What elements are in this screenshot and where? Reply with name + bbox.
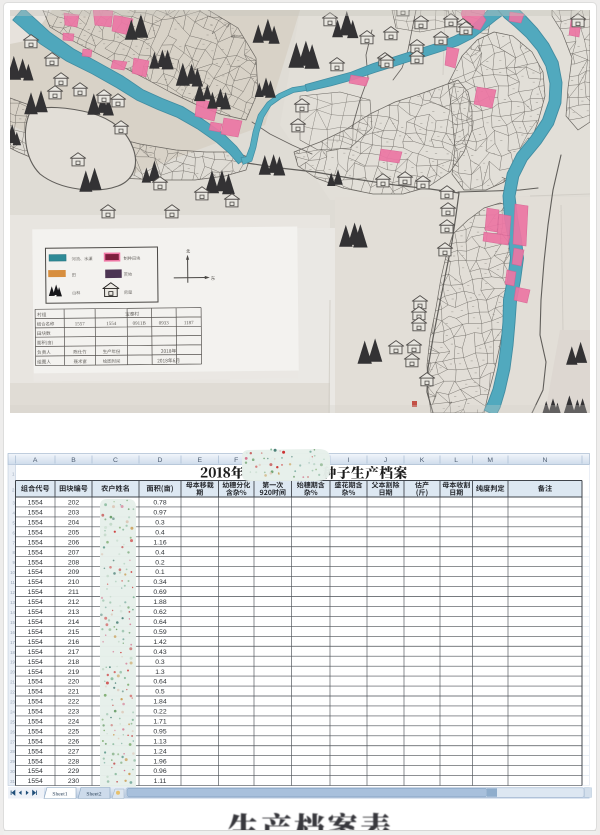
svg-text:1554: 1554 <box>28 589 43 596</box>
svg-text:227: 227 <box>68 748 80 755</box>
svg-text:1.3: 1.3 <box>155 669 165 676</box>
svg-text:1.96: 1.96 <box>153 758 166 765</box>
svg-text:1.71: 1.71 <box>153 719 166 726</box>
svg-text:224: 224 <box>68 719 80 726</box>
svg-text:25: 25 <box>10 719 15 724</box>
svg-text:0.22: 0.22 <box>153 709 166 716</box>
svg-text:209: 209 <box>68 569 80 576</box>
svg-text:1187: 1187 <box>184 321 194 326</box>
svg-text:I: I <box>348 457 350 464</box>
svg-text:1554: 1554 <box>28 748 43 755</box>
svg-text:A: A <box>33 457 38 464</box>
svg-text:204: 204 <box>68 520 80 527</box>
svg-text:211: 211 <box>68 589 79 596</box>
svg-text:1.11: 1.11 <box>154 778 167 785</box>
svg-text:202: 202 <box>68 500 80 507</box>
svg-text:226: 226 <box>68 738 80 745</box>
svg-text:214: 214 <box>68 619 80 626</box>
svg-text:1554: 1554 <box>28 510 43 517</box>
svg-text:217: 217 <box>68 649 80 656</box>
svg-text:0.3: 0.3 <box>155 520 165 527</box>
svg-text:20: 20 <box>10 670 15 675</box>
svg-text:208: 208 <box>68 559 80 566</box>
svg-text:K: K <box>420 457 425 464</box>
svg-text:E: E <box>198 457 203 464</box>
svg-text:15: 15 <box>10 620 15 625</box>
svg-text:0.4: 0.4 <box>155 549 165 556</box>
svg-text:F: F <box>234 457 238 464</box>
svg-text:10: 10 <box>10 570 15 575</box>
svg-text:228: 228 <box>68 758 80 765</box>
svg-text:1554: 1554 <box>28 579 43 586</box>
svg-text:0.2: 0.2 <box>155 559 165 566</box>
svg-text:0.64: 0.64 <box>153 619 166 626</box>
svg-text:1554: 1554 <box>106 322 117 327</box>
svg-text:1554: 1554 <box>28 729 43 736</box>
svg-text:28: 28 <box>10 749 15 754</box>
svg-text:1554: 1554 <box>28 768 43 775</box>
svg-text:1554: 1554 <box>28 639 43 646</box>
svg-text:19: 19 <box>10 660 15 665</box>
svg-text:18: 18 <box>10 650 15 655</box>
svg-text:0.1: 0.1 <box>155 569 165 576</box>
svg-text:12: 12 <box>10 590 15 595</box>
svg-text:1554: 1554 <box>28 719 43 726</box>
svg-text:216: 216 <box>68 639 80 646</box>
svg-text:M: M <box>487 457 493 464</box>
svg-text:1554: 1554 <box>28 629 43 636</box>
svg-text:1554: 1554 <box>28 520 43 527</box>
svg-text:30: 30 <box>10 769 15 774</box>
svg-text:N: N <box>543 457 548 464</box>
svg-text:0.34: 0.34 <box>153 579 166 586</box>
svg-text:1.42: 1.42 <box>153 639 166 646</box>
svg-text:1557: 1557 <box>75 322 86 327</box>
svg-text:1554: 1554 <box>28 609 43 616</box>
svg-text:1554: 1554 <box>28 659 43 666</box>
svg-text:27: 27 <box>10 739 15 744</box>
svg-text:24: 24 <box>10 710 15 715</box>
svg-text:1.84: 1.84 <box>153 699 166 706</box>
svg-text:210: 210 <box>68 579 80 586</box>
svg-text:D: D <box>158 457 163 464</box>
svg-text:26: 26 <box>10 729 15 734</box>
svg-text:0.69: 0.69 <box>153 589 166 596</box>
svg-text:1.13: 1.13 <box>153 738 166 745</box>
svg-text:1554: 1554 <box>28 709 43 716</box>
svg-text:0933: 0933 <box>159 321 170 326</box>
svg-text:0.5: 0.5 <box>155 689 165 696</box>
svg-text:222: 222 <box>68 699 80 706</box>
svg-text:213: 213 <box>68 609 80 616</box>
svg-text:0.95: 0.95 <box>153 729 166 736</box>
svg-text:11: 11 <box>10 580 15 585</box>
svg-text:219: 219 <box>68 669 80 676</box>
svg-text:C: C <box>113 457 118 464</box>
svg-text:1554: 1554 <box>28 500 43 507</box>
svg-text:1554: 1554 <box>28 559 43 566</box>
svg-text:14: 14 <box>10 610 15 615</box>
svg-text:0.62: 0.62 <box>153 609 166 616</box>
svg-text:0.64: 0.64 <box>153 679 166 686</box>
svg-text:0.96: 0.96 <box>153 768 166 775</box>
svg-text:0.59: 0.59 <box>153 629 166 636</box>
svg-text:1.24: 1.24 <box>153 748 166 755</box>
svg-text:212: 212 <box>68 599 80 606</box>
svg-text:1554: 1554 <box>28 549 43 556</box>
svg-text:0.43: 0.43 <box>153 649 166 656</box>
svg-text:1554: 1554 <box>28 599 43 606</box>
svg-text:0911B: 0911B <box>133 322 147 327</box>
svg-text:J: J <box>384 457 387 464</box>
svg-text:0.4: 0.4 <box>155 530 165 537</box>
svg-text:0.78: 0.78 <box>153 500 166 507</box>
svg-text:207: 207 <box>68 549 80 556</box>
svg-text:1.88: 1.88 <box>153 599 166 606</box>
svg-text:1.16: 1.16 <box>153 539 166 546</box>
svg-text:220: 220 <box>68 679 80 686</box>
svg-text:1554: 1554 <box>28 679 43 686</box>
svg-text:1554: 1554 <box>28 539 43 546</box>
svg-text:29: 29 <box>10 759 15 764</box>
svg-text:21: 21 <box>10 680 15 685</box>
svg-text:Sheet1: Sheet1 <box>52 792 67 798</box>
svg-text:1554: 1554 <box>28 649 43 656</box>
svg-text:225: 225 <box>68 729 80 736</box>
svg-text:31: 31 <box>10 779 15 784</box>
svg-text:1554: 1554 <box>28 619 43 626</box>
svg-text:229: 229 <box>68 768 80 775</box>
svg-text:22: 22 <box>10 690 15 695</box>
svg-text:13: 13 <box>10 600 15 605</box>
svg-text:218: 218 <box>68 659 80 666</box>
svg-text:0.97: 0.97 <box>153 510 166 517</box>
svg-text:Sheet2: Sheet2 <box>86 792 101 798</box>
svg-text:1554: 1554 <box>28 669 43 676</box>
svg-text:1554: 1554 <box>28 569 43 576</box>
svg-text:17: 17 <box>10 640 15 645</box>
svg-text:230: 230 <box>68 778 80 785</box>
svg-text:1554: 1554 <box>28 758 43 765</box>
svg-text:203: 203 <box>68 510 80 517</box>
svg-text:23: 23 <box>10 700 15 705</box>
svg-text:206: 206 <box>68 539 80 546</box>
svg-text:1554: 1554 <box>28 530 43 537</box>
svg-text:1554: 1554 <box>28 738 43 745</box>
svg-text:1554: 1554 <box>28 689 43 696</box>
svg-text:16: 16 <box>10 630 15 635</box>
svg-text:1554: 1554 <box>28 699 43 706</box>
svg-text:221: 221 <box>68 689 80 696</box>
svg-text:B: B <box>71 457 76 464</box>
svg-text:205: 205 <box>68 530 80 537</box>
svg-text:223: 223 <box>68 709 80 716</box>
svg-text:1554: 1554 <box>28 778 43 785</box>
svg-text:215: 215 <box>68 629 80 636</box>
svg-text:0.3: 0.3 <box>155 659 165 666</box>
svg-text:L: L <box>454 457 458 464</box>
